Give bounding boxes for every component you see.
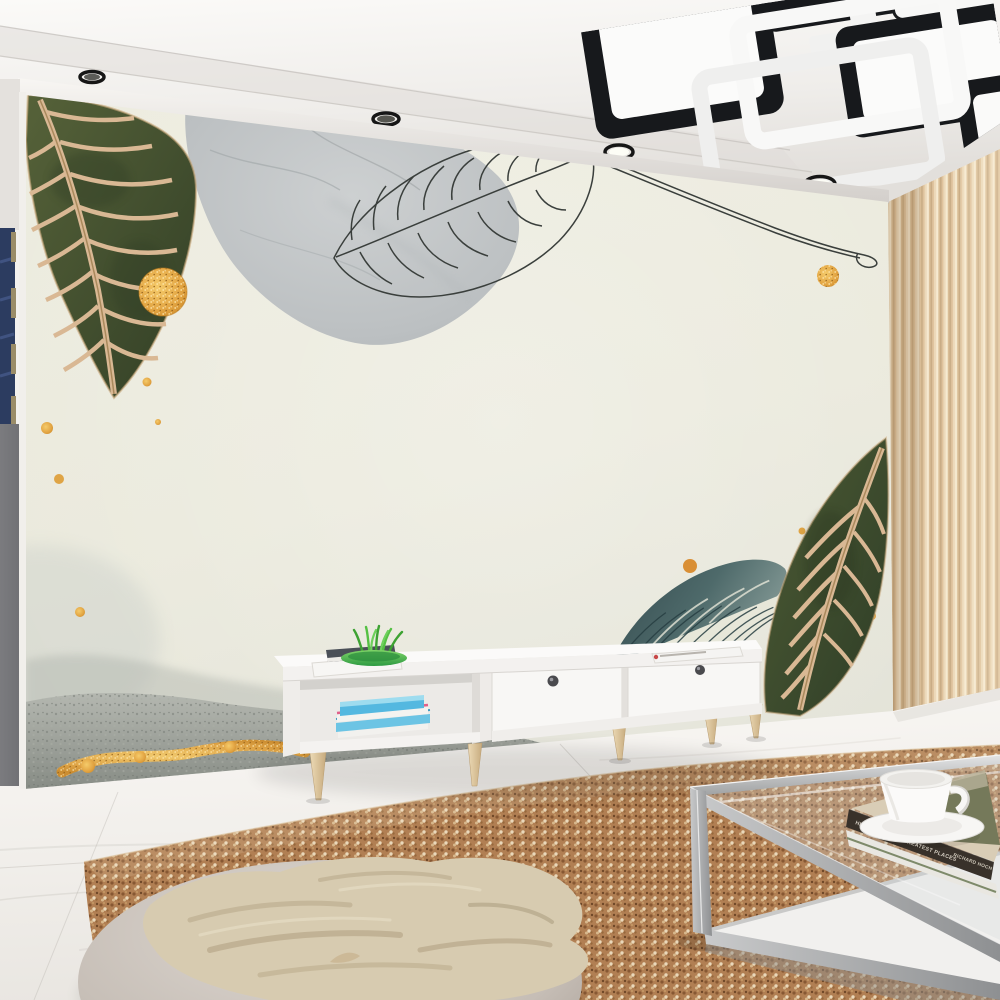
slat-panel-highlight xyxy=(960,140,1000,720)
leg-shadow xyxy=(746,736,766,742)
leg-shadow xyxy=(702,742,722,748)
drawer-knob[interactable] xyxy=(695,665,705,675)
slat-curtain-panel xyxy=(886,140,1000,720)
left-wall-gray-shade xyxy=(0,424,20,786)
knob-highlight xyxy=(550,678,554,682)
leg-shadow xyxy=(609,758,631,764)
tv-stand-left-panel xyxy=(283,680,300,757)
magazine-red-accent xyxy=(654,655,658,659)
drawer-knob[interactable] xyxy=(548,676,559,687)
throw-blanket xyxy=(143,857,588,1000)
dish-inner xyxy=(348,652,400,662)
navy-roman-blind xyxy=(0,228,16,426)
tv-stand-divider xyxy=(480,671,492,742)
living-room-photo: HISTORY OF THE GREATEST PLACES RICHARD H… xyxy=(0,0,1000,1000)
cup-interior xyxy=(887,772,945,786)
knob-highlight xyxy=(697,667,700,670)
mural-left-edge xyxy=(19,92,26,790)
left-wall-white xyxy=(0,79,20,230)
leg-shadow xyxy=(306,798,330,804)
left-side-wall xyxy=(0,79,26,790)
